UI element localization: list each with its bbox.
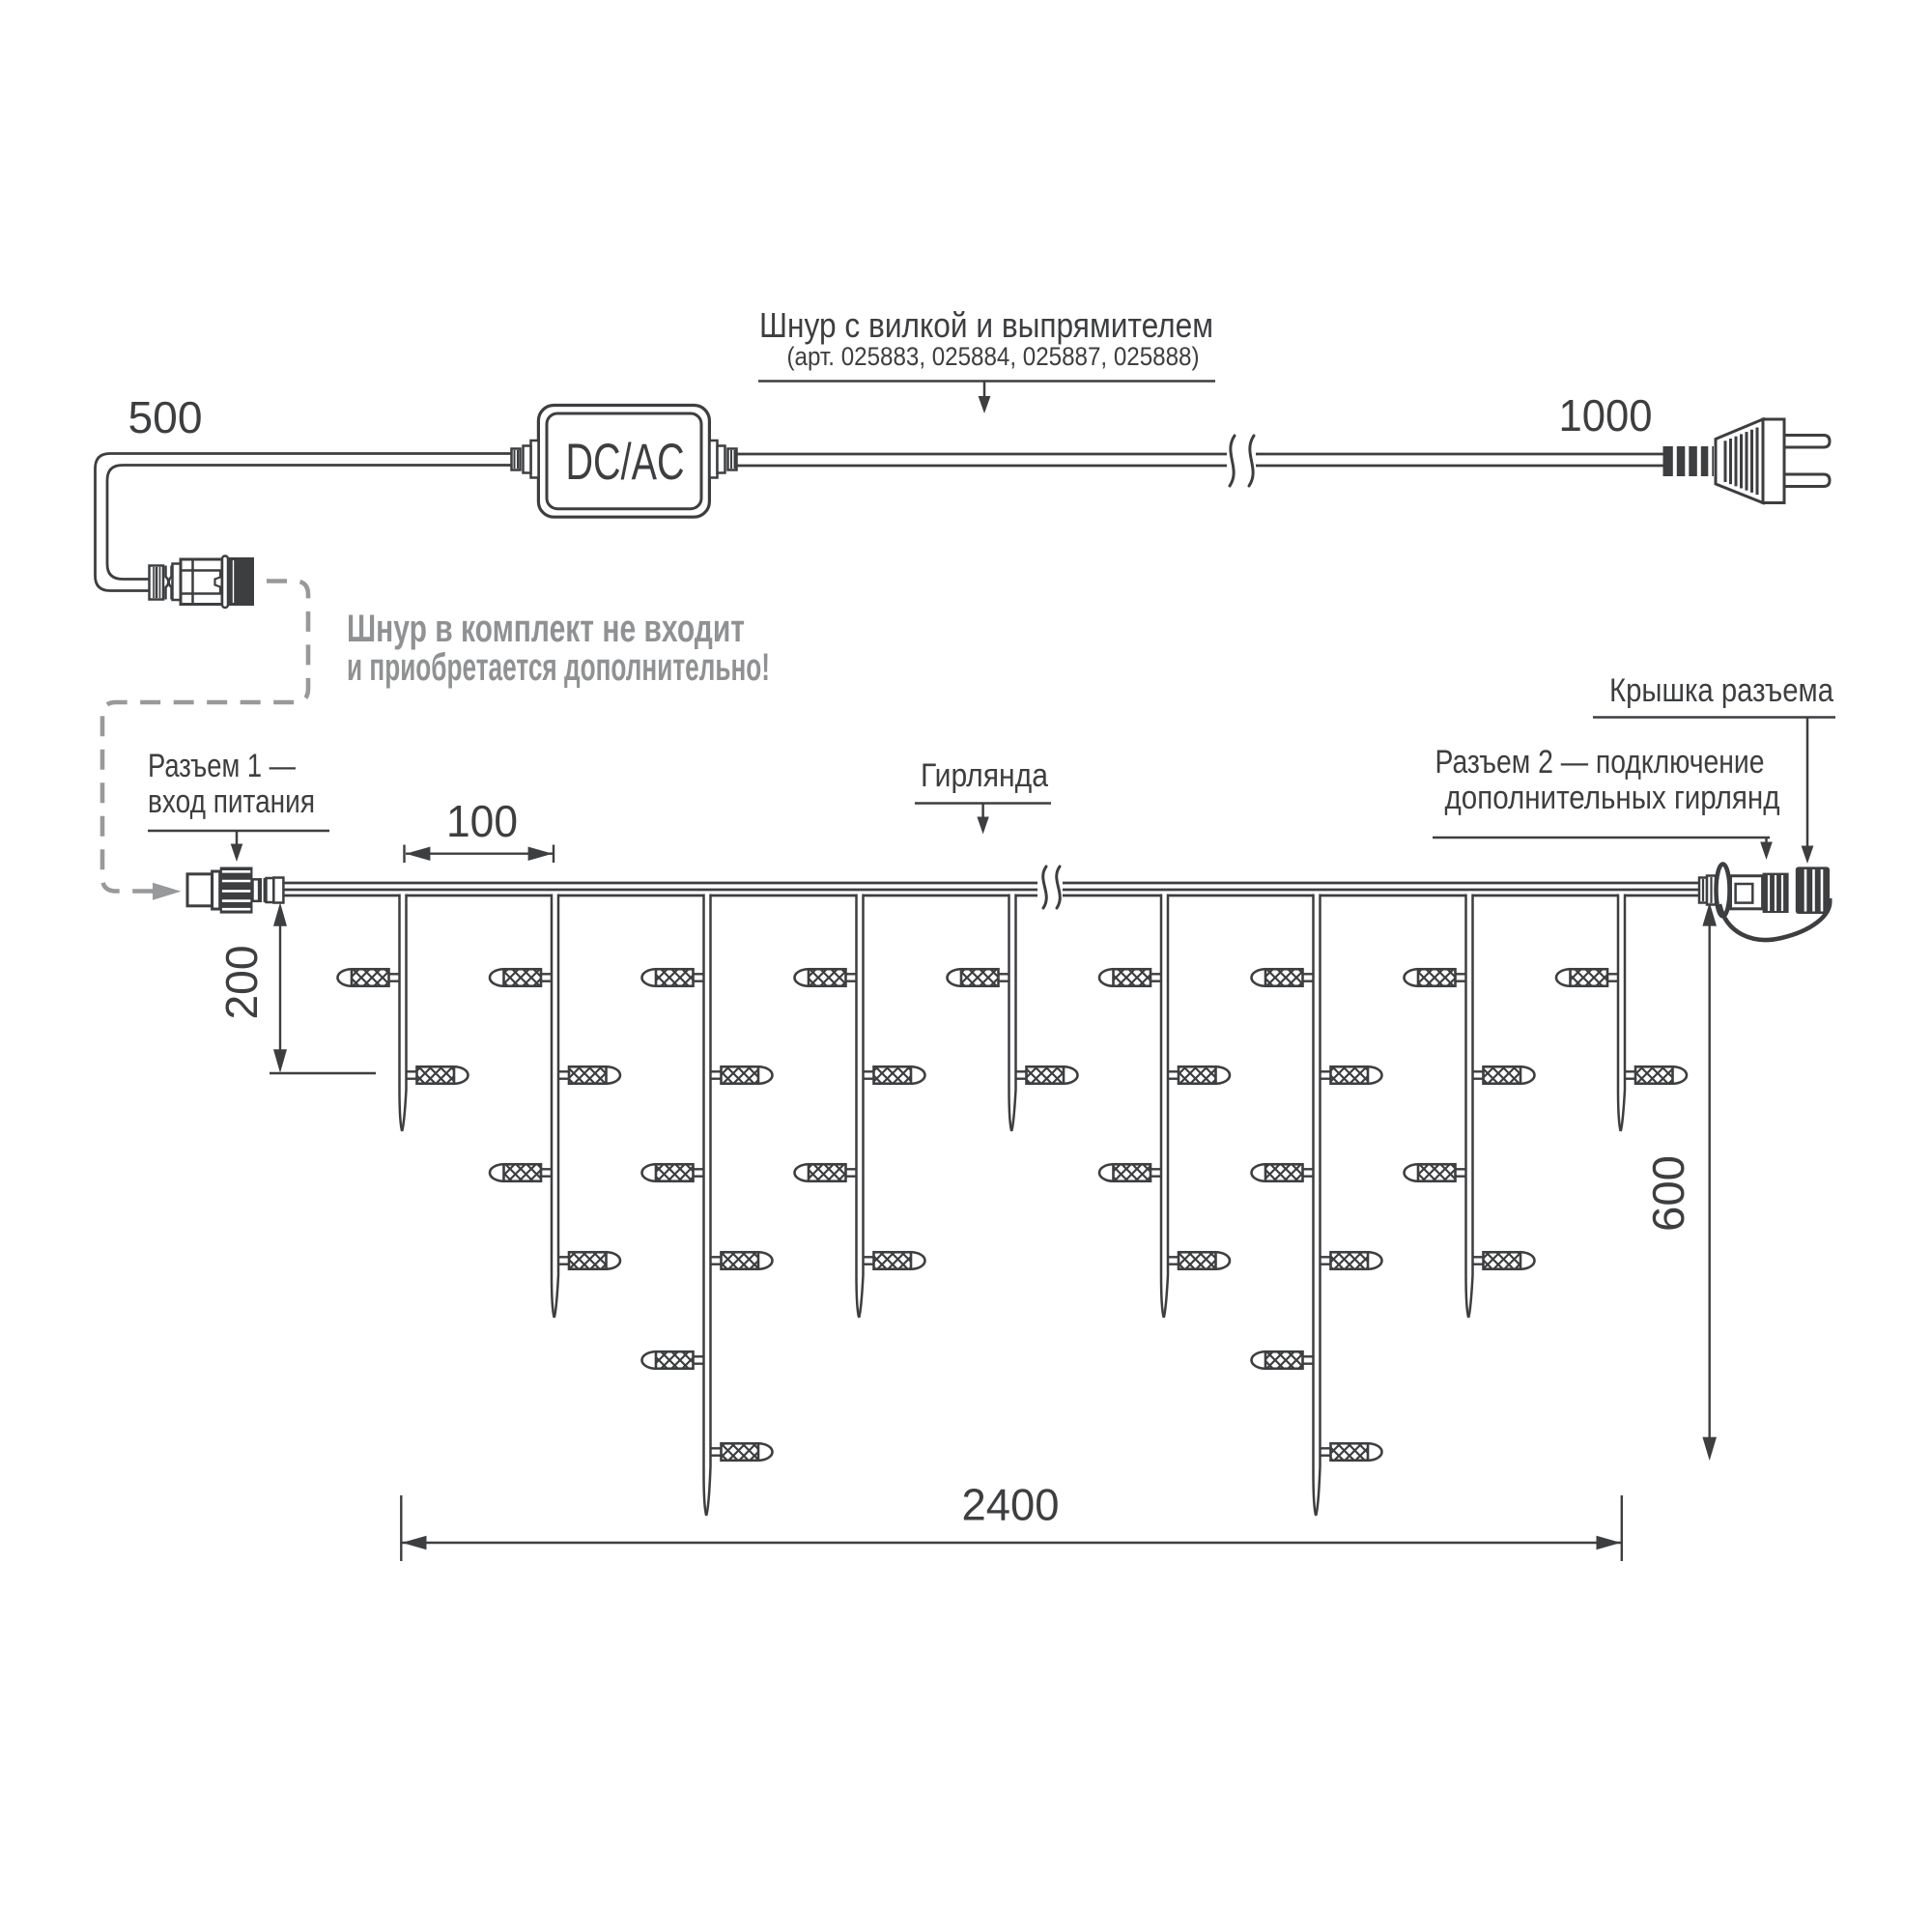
svg-text:DC/AC: DC/AC [566, 434, 685, 491]
svg-text:Шнур с вилкой и выпрямителем: Шнур с вилкой и выпрямителем [759, 305, 1213, 345]
svg-text:(арт. 025883, 025884, 025887,: (арт. 025883, 025884, 025887, 025888) [787, 342, 1200, 371]
svg-text:1000: 1000 [1559, 390, 1653, 440]
svg-text:Разъем 1 —: Разъем 1 — [148, 748, 296, 784]
svg-text:100: 100 [446, 796, 518, 846]
svg-text:Крышка разъема: Крышка разъема [1609, 672, 1833, 709]
svg-text:200: 200 [216, 946, 267, 1020]
svg-text:500: 500 [128, 392, 203, 442]
svg-text:и приобретается дополнительно!: и приобретается дополнительно! [347, 646, 770, 689]
svg-text:вход питания: вход питания [148, 783, 315, 820]
svg-text:600: 600 [1643, 1155, 1693, 1232]
svg-text:Гирлянда: Гирлянда [921, 757, 1048, 794]
svg-text:Шнур в комплект не входит: Шнур в комплект не входит [347, 608, 745, 650]
svg-text:2400: 2400 [962, 1480, 1060, 1530]
svg-text:дополнительных гирлянд: дополнительных гирлянд [1445, 780, 1780, 816]
svg-text:Разъем 2 — подключение: Разъем 2 — подключение [1435, 744, 1765, 781]
